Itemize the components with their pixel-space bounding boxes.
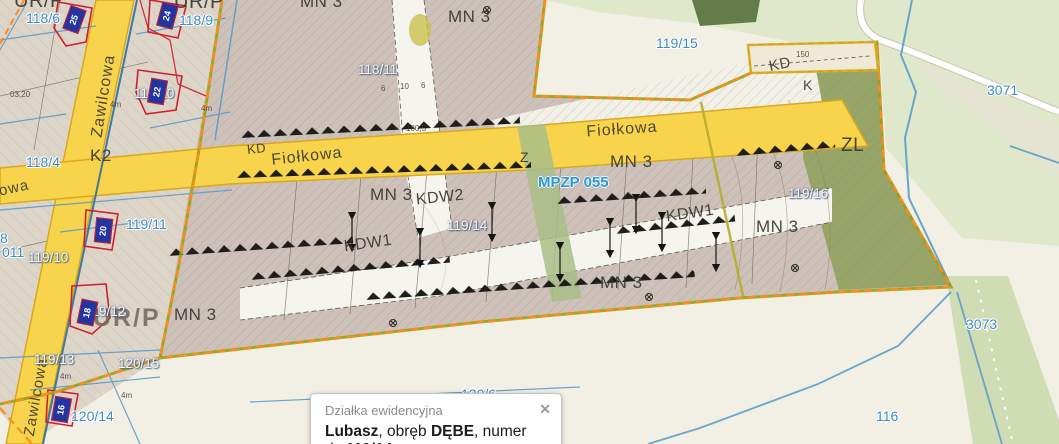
parcel-label: 8 [0, 231, 8, 245]
annotation: 6 [381, 85, 385, 93]
annotation: 10 [400, 83, 409, 91]
zone-label: K [803, 78, 813, 92]
zone-label: KD [246, 141, 266, 156]
parcel-info-line: Lubasz, obręb DĘBE, numer dz.119/14 [325, 423, 547, 444]
street-label: Zawilcowa [90, 53, 119, 138]
building-marker: 16 [51, 396, 72, 424]
parcel-label: 120/15 [118, 357, 159, 371]
parcel-obreb: DĘBE [431, 423, 474, 440]
zone-label: MN 3 [756, 218, 799, 235]
parcel-label: 120/14 [71, 409, 114, 423]
annotation: 4m [60, 373, 71, 381]
parcel-label: 119/10 [28, 251, 68, 265]
parcel-label: 118/6 [26, 11, 60, 25]
parcel-label: 3073 [966, 317, 997, 331]
parcel-label: 119/16 [788, 187, 828, 201]
street-label: Fiołkowa [271, 145, 343, 168]
parcel-label: 119/14 [447, 219, 487, 233]
street-label: Fiołkowa [586, 120, 658, 141]
parcel-label: 119/11 [126, 217, 167, 231]
parcel-label: 011 [2, 245, 24, 259]
parcel-village: Lubasz [325, 423, 378, 440]
annotation: 4m [110, 101, 121, 109]
parcel-label: 3071 [987, 83, 1018, 97]
zone-label: MN 3 [600, 274, 643, 291]
popup-title: Działka ewidencyjna [325, 403, 547, 418]
building-number: 24 [161, 9, 173, 21]
annotation: 03,20 [10, 91, 30, 99]
building-number: 20 [98, 225, 109, 236]
parcel-label: 116 [876, 409, 898, 423]
parcel-label: 118/4 [26, 155, 60, 169]
building-marker: 20 [94, 217, 114, 244]
close-icon[interactable]: ✕ [539, 401, 551, 418]
zone-label: MN 3 [610, 153, 653, 170]
parcel-sep1: , obręb [378, 423, 431, 440]
annotation: 4m [201, 105, 212, 113]
parcel-label: 118/9 [179, 13, 213, 27]
zone-label: UR/P [174, 0, 224, 12]
map-labels-layer: ZawilcowaZawilcowaFiołkowaFiołkowaowaUR/… [0, 0, 1059, 444]
parcel-label: 119/15 [656, 36, 698, 50]
parcel-label: 118/11 [358, 63, 397, 77]
zone-label: Z [520, 150, 529, 164]
annotation: 180,5 [406, 125, 426, 133]
zone-label: KD [768, 55, 792, 74]
map-canvas[interactable]: ZawilcowaZawilcowaFiołkowaFiołkowaowaUR/… [0, 0, 1059, 444]
building-number: 18 [82, 307, 94, 319]
zone-label: KDW2 [415, 188, 465, 209]
info-popup: Działka ewidencyjna ✕ Lubasz, obręb DĘBE… [310, 393, 562, 444]
building-number: 25 [68, 13, 81, 26]
mpzp-plan-label: MPZP 055 [538, 175, 609, 190]
building-number: 16 [56, 404, 68, 416]
zone-label: MN 3 [448, 8, 491, 25]
zone-label: MN 3 [174, 306, 217, 323]
zone-label: ZL [841, 136, 864, 155]
zone-label: K2 [90, 147, 112, 164]
zone-label: MN 3 [300, 0, 343, 10]
building-marker: 25 [62, 5, 87, 34]
street-label: Zawilcowa [22, 357, 50, 437]
building-marker: 22 [147, 78, 168, 106]
annotation: 6 [421, 82, 425, 90]
annotation: 150 [796, 51, 809, 59]
zone-label: KDW1 [665, 203, 715, 226]
street-label: owa [0, 177, 30, 198]
building-marker: 24 [156, 1, 179, 30]
building-number: 22 [152, 86, 164, 98]
parcel-label: 119/13 [34, 353, 74, 367]
zone-label: MN 3 [370, 186, 413, 203]
annotation: 4m [121, 392, 132, 400]
zone-label: KDW1 [343, 233, 393, 256]
